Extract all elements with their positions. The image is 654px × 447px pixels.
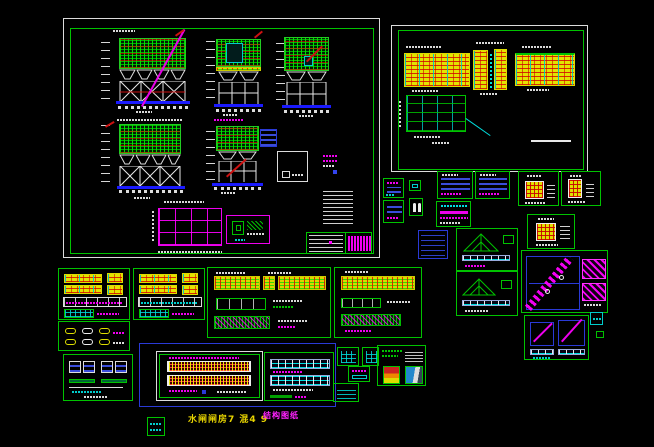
beam-block [107, 273, 123, 283]
cyan-glyph [412, 184, 418, 188]
panel-legend-grid-1[interactable] [337, 347, 359, 366]
beam-block [263, 276, 275, 290]
magenta-mark [465, 265, 485, 267]
door-opening [226, 43, 243, 63]
anchor-bolts [119, 190, 183, 193]
green-table [341, 298, 381, 308]
oval-detail [99, 339, 110, 345]
cyan-entries [141, 302, 197, 304]
panel-detail-2[interactable] [409, 180, 421, 191]
cyan-grid [341, 351, 356, 363]
preview-image-blue [405, 366, 423, 384]
blue-dot [333, 170, 337, 174]
panel-colgrid-1[interactable] [518, 171, 559, 206]
magenta-mark [113, 332, 125, 334]
stair-section-2 [558, 320, 585, 346]
green-square-detail [232, 221, 244, 235]
cyan-glyph [593, 318, 601, 320]
framing-plan-grid [406, 95, 466, 132]
panel-weld-ovals[interactable] [58, 321, 130, 351]
beam-block [182, 273, 198, 283]
caption-mark [221, 192, 235, 194]
column-tie-grid [568, 179, 582, 198]
blue-dot [202, 390, 206, 394]
dim-text [345, 271, 369, 273]
section-square [83, 361, 95, 373]
dim-text [273, 300, 303, 302]
beam-elevation [278, 276, 326, 290]
node-detail-box [226, 215, 270, 244]
base-hatch [558, 349, 585, 355]
magenta-mark [345, 330, 371, 332]
scale-bar [531, 140, 571, 142]
white-mark [480, 174, 496, 176]
magenta-mark [278, 326, 296, 328]
braced-frame [119, 166, 181, 186]
magenta-mark [479, 193, 499, 195]
cyan-mark [235, 239, 245, 241]
hopper-row [218, 151, 257, 161]
cyan-rows [337, 387, 356, 399]
beam-elevation-top [167, 361, 251, 372]
plate-inner [282, 171, 290, 178]
node-circle [559, 275, 564, 280]
oval-detail [99, 328, 110, 334]
dim-text [480, 93, 498, 95]
panel-beams-right[interactable] [334, 267, 422, 338]
anchor-bolts [284, 110, 329, 113]
beam-elevation [214, 276, 260, 290]
section-square [69, 361, 81, 373]
page-glyph [418, 203, 421, 212]
dim-text [113, 30, 135, 32]
green-grid [64, 309, 94, 318]
sheet-title-label: 水闸闸房7 混4 9 [188, 412, 268, 425]
dim-text [527, 89, 549, 91]
title-block-text [348, 236, 371, 251]
white-mark [568, 201, 586, 203]
stair-section-1 [530, 322, 554, 346]
magenta-mark [273, 371, 303, 373]
white-mark [442, 174, 458, 176]
anchor-bolts [214, 187, 261, 190]
title-block-rows [309, 235, 343, 252]
section-square [115, 361, 127, 373]
magenta-bar [440, 211, 468, 214]
panel-stair-small[interactable] [524, 315, 589, 360]
oval-detail [82, 339, 93, 345]
magenta-mark [323, 160, 337, 162]
hopper-row [119, 154, 181, 166]
hatch-scribble [247, 221, 263, 230]
blue-rows [387, 204, 402, 213]
beam-strip [139, 274, 177, 283]
node-circle [545, 289, 550, 294]
frame-posts [218, 82, 259, 104]
plan-dim-left [152, 211, 154, 241]
anchor-bolts [118, 106, 188, 109]
green-caption [382, 355, 398, 357]
stair-diagonal [561, 319, 583, 343]
panel-images[interactable] [377, 345, 426, 386]
panel-rebar-1[interactable] [437, 171, 473, 199]
white-mark [570, 175, 582, 177]
column-tie-grid [536, 223, 556, 241]
cad-model-space: 水闸闸房7 混4 9 结构图纸 [0, 0, 654, 447]
purlin-strip [462, 300, 510, 306]
white-mark [536, 244, 558, 246]
column-tie-grid [525, 181, 544, 199]
beam-elevation-bottom [167, 375, 251, 386]
green-bar [270, 395, 292, 398]
white-text-block [405, 350, 423, 362]
magenta-entries [66, 302, 122, 304]
preview-image-red [383, 366, 400, 384]
green-bar [69, 379, 95, 383]
cyan-glyph [150, 429, 162, 431]
magenta-mark [387, 182, 399, 184]
white-mark [323, 165, 335, 167]
magenta-mark [295, 396, 307, 398]
side-detail [501, 280, 512, 289]
elevation-side-view-2 [276, 31, 334, 115]
dimension-column [206, 124, 215, 180]
magenta-mark [172, 313, 194, 315]
caption-mark [136, 111, 152, 113]
panel-detail-4[interactable] [409, 198, 423, 216]
dim-text [268, 272, 292, 274]
leader-red [254, 31, 263, 39]
dimension-column [206, 36, 215, 98]
rebar-rows [479, 177, 507, 190]
hopper-row [119, 69, 186, 81]
magenta-mark [352, 370, 366, 372]
panel-beams-left-2[interactable] [133, 268, 205, 320]
purlin-strip [462, 255, 510, 261]
panel-truss-1[interactable] [456, 228, 518, 271]
dim-text [522, 46, 552, 48]
framing-plan-grid [158, 208, 222, 246]
beam-strip [64, 274, 102, 283]
tiny-green-box[interactable] [596, 331, 604, 338]
stair-diagonal [533, 323, 553, 343]
schedule-table [138, 297, 202, 307]
green-bar [101, 379, 127, 383]
caption-mark [223, 114, 237, 116]
oval-detail [65, 328, 76, 334]
plate-detail [277, 151, 308, 182]
page-glyph [413, 203, 416, 212]
stair-frame [526, 256, 580, 310]
truss-elevation-bottom [270, 375, 330, 386]
panel-beams-left-1[interactable] [58, 268, 130, 320]
elevation-front-view [101, 29, 191, 113]
schedule-table [63, 297, 127, 307]
truss-triangle [463, 233, 499, 252]
panel-detail-3[interactable] [383, 200, 404, 223]
sheet-c-left-subsheet [156, 351, 263, 401]
beam-elevation-1 [404, 53, 470, 87]
dim-text [432, 142, 450, 144]
hopper-row [218, 71, 259, 82]
cyan-mark [386, 194, 394, 196]
panel-colgrid-2[interactable] [561, 171, 601, 206]
white-line [69, 387, 123, 388]
foundation-line [117, 186, 185, 189]
panel-beams-wide[interactable] [207, 267, 331, 338]
caption-mark [134, 197, 150, 199]
white-mark [584, 304, 602, 306]
dim-text [292, 174, 304, 176]
dimension-column [101, 124, 110, 182]
green-table [216, 298, 266, 310]
green-grid [139, 309, 169, 318]
magenta-row [440, 217, 468, 219]
notes [547, 182, 555, 198]
title-block-divider [345, 233, 346, 253]
panel-colgrid-3[interactable] [527, 214, 575, 249]
landing-detail [582, 283, 606, 301]
base-hatch [530, 349, 554, 355]
panel-truss-2[interactable] [456, 271, 518, 316]
dim-text [476, 42, 504, 44]
magenta-mark [97, 313, 119, 315]
beam-elevation-2-right [494, 49, 507, 90]
cyan-bar [352, 375, 367, 379]
magenta-dot [329, 241, 332, 244]
cyan-grid [366, 351, 377, 363]
notes [560, 225, 570, 239]
landing-detail [582, 259, 606, 279]
panel-blue-table[interactable] [418, 230, 448, 259]
bunker-hatch [119, 124, 181, 154]
truss-triangle [462, 278, 496, 296]
oval-detail [65, 339, 76, 345]
foundation-line [214, 104, 263, 107]
beam-block [182, 285, 198, 295]
dimension-column [101, 35, 110, 99]
sheet-a[interactable] [63, 18, 380, 258]
foundation-line [212, 183, 263, 186]
dim-text [414, 136, 440, 138]
panel-stamp[interactable] [147, 417, 165, 436]
dim-text [387, 301, 411, 303]
dim-text [216, 272, 246, 274]
panel-legend-note[interactable] [348, 366, 370, 382]
magenta-mark [169, 390, 197, 392]
elevation-side-view-1 [206, 31, 268, 113]
notes-column [323, 189, 353, 224]
sheet-note-label: 结构图纸 [263, 410, 299, 421]
magenta-mark [441, 193, 461, 195]
title-block [306, 232, 372, 254]
truss-elevation-top [270, 359, 330, 369]
white-mark [440, 222, 460, 224]
beam-strip [139, 285, 177, 294]
dim-text [412, 90, 438, 92]
white-mark [84, 396, 108, 398]
panel-sections[interactable] [63, 354, 133, 401]
cyan-glyph [150, 423, 162, 425]
magenta-mark [323, 155, 337, 157]
panel-detail-1[interactable] [383, 178, 404, 198]
white-mark [217, 391, 247, 393]
notes [586, 181, 594, 197]
hopper-row [286, 71, 327, 82]
foundation-line [282, 105, 331, 108]
sheet-b[interactable] [391, 25, 588, 172]
dim-text [247, 233, 265, 235]
rebar-rows [441, 177, 470, 190]
panel-legend-table[interactable] [333, 383, 359, 402]
blue-sketch [387, 187, 401, 193]
magenta-mark [387, 217, 399, 219]
blue-table-rows [421, 233, 445, 256]
cyan-ring-row [441, 205, 467, 207]
cyan-mark [72, 391, 102, 393]
white-mark [538, 218, 554, 220]
foundation-line [116, 101, 190, 104]
white-mark [113, 342, 125, 344]
beam-block [107, 285, 123, 295]
panel-rebar-2[interactable] [475, 171, 510, 199]
plan-dim-left [399, 99, 401, 127]
beam-elevation-3 [515, 53, 575, 86]
panel-magenta-table[interactable] [436, 201, 471, 227]
white-mark [278, 320, 308, 322]
dim-text [406, 46, 442, 48]
valve-scribble [214, 119, 244, 121]
caption-mark [299, 115, 313, 117]
oval-detail [82, 328, 93, 334]
beam-elevation [341, 276, 415, 290]
beam-elevation-2-left [473, 50, 488, 90]
side-detail [503, 235, 514, 244]
bunker-hatch [216, 126, 259, 151]
green-mark [273, 306, 293, 308]
anchor-bolts [216, 109, 261, 112]
white-mark [525, 202, 545, 204]
green-caption [382, 350, 402, 352]
frame-posts [286, 82, 327, 105]
bolt-detail [323, 153, 339, 179]
magenta-dim-row [169, 357, 239, 359]
white-mark [273, 389, 313, 391]
section-square [101, 361, 113, 373]
plan-dim-bottom [158, 251, 222, 253]
elevation-section-view [206, 116, 278, 194]
beam-strip [64, 285, 102, 294]
blue-grid-detail [260, 129, 277, 147]
elevation-rear-view [101, 116, 191, 196]
sheet-c-right-subsheet [264, 352, 334, 401]
green-square-inner [236, 225, 241, 231]
panel-stair-big[interactable] [521, 250, 608, 313]
roof-dim-line [117, 119, 183, 121]
cyan-mark [533, 357, 551, 359]
cyan-web-marks [490, 52, 492, 88]
hatched-strip [214, 316, 270, 329]
plan-dim-top [164, 201, 204, 203]
sheet-c[interactable] [139, 343, 336, 407]
white-mark [465, 310, 489, 312]
white-mark [527, 175, 541, 177]
panel-cyan-stamp[interactable] [590, 312, 603, 325]
hatched-strip [341, 314, 401, 326]
